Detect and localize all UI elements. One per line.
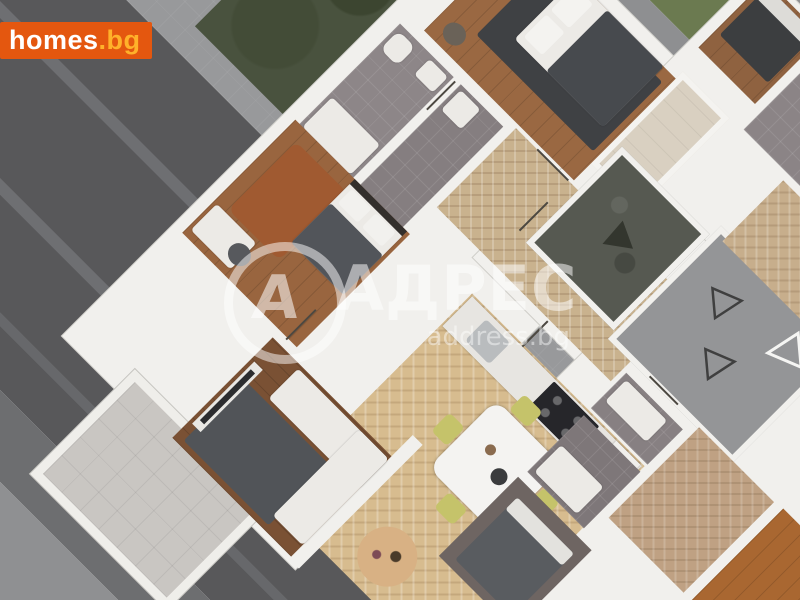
listing-photo-viewport: А АДРЕС address.bg homes.bg [0,0,800,600]
logo-text-main: homes [9,25,99,55]
homes-bg-logo[interactable]: homes.bg [0,22,152,59]
stairs-direction-arrow-icon [698,341,741,384]
stairs-direction-arrow-white-icon [761,328,800,376]
stairs-direction-arrow-icon [705,280,748,323]
logo-text-suffix: .bg [99,25,141,55]
floor-plan-image[interactable] [0,0,800,600]
